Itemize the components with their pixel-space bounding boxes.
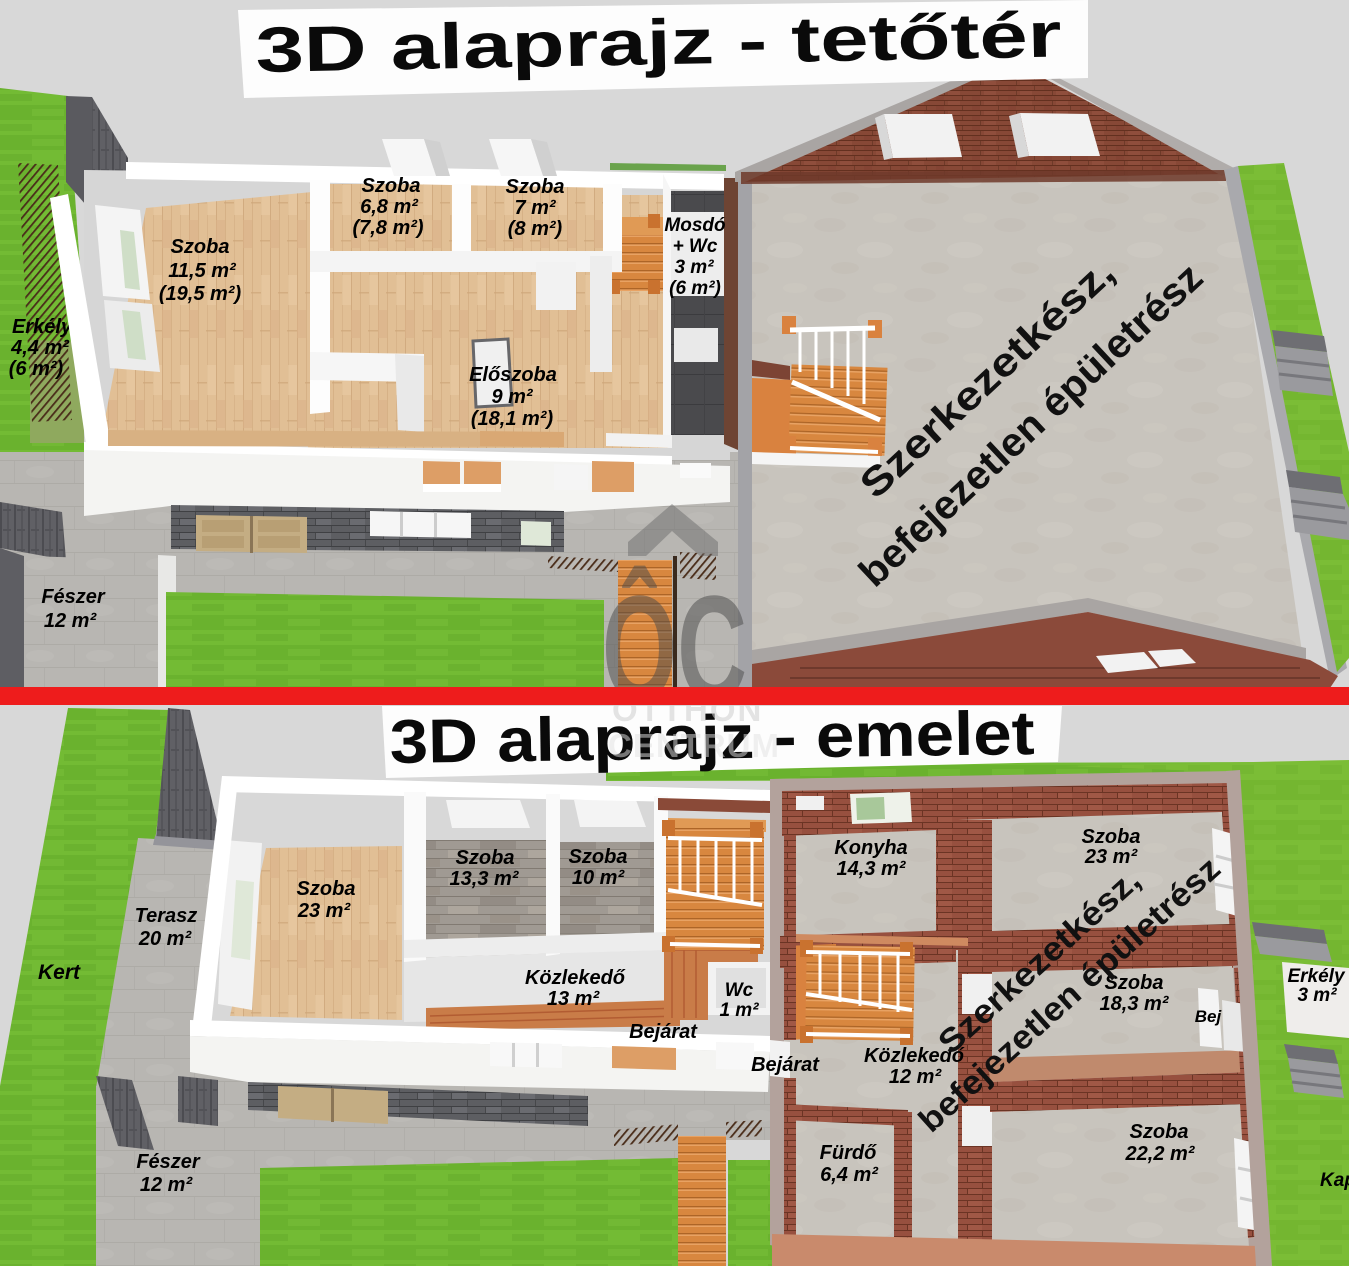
svg-text:6,4 m²: 6,4 m² xyxy=(820,1164,879,1186)
svg-text:Bej: Bej xyxy=(1195,1007,1223,1026)
svg-text:Fészer: Fészer xyxy=(136,1151,201,1173)
svg-text:23 m²: 23 m² xyxy=(297,900,352,922)
svg-text:Szoba: Szoba xyxy=(1130,1121,1189,1143)
svg-text:9 m²: 9 m² xyxy=(491,386,533,408)
svg-text:(6 m²): (6 m²) xyxy=(9,358,64,380)
svg-text:1 m²: 1 m² xyxy=(719,1000,759,1021)
svg-text:(19,5 m²): (19,5 m²) xyxy=(159,283,242,305)
svg-text:Fürdő: Fürdő xyxy=(820,1142,877,1164)
svg-text:11,5 m²: 11,5 m² xyxy=(168,260,237,282)
svg-text:Közlekedő: Közlekedő xyxy=(525,967,626,989)
svg-text:Szoba: Szoba xyxy=(171,236,230,258)
svg-text:Terasz: Terasz xyxy=(135,905,198,927)
svg-text:12 m²: 12 m² xyxy=(44,610,98,632)
svg-text:Konyha: Konyha xyxy=(834,837,907,859)
svg-text:Szoba: Szoba xyxy=(297,878,356,900)
svg-text:(8 m²): (8 m²) xyxy=(508,218,563,240)
svg-text:Kap: Kap xyxy=(1320,1170,1349,1191)
svg-text:Mosdó: Mosdó xyxy=(664,215,725,236)
svg-text:Erkély: Erkély xyxy=(1287,966,1345,987)
svg-text:23 m²: 23 m² xyxy=(1084,846,1139,868)
svg-text:22,2 m²: 22,2 m² xyxy=(1125,1143,1196,1165)
svg-text:(7,8 m²): (7,8 m²) xyxy=(352,217,423,239)
svg-text:13,3 m²: 13,3 m² xyxy=(450,868,520,890)
svg-text:12 m²: 12 m² xyxy=(889,1066,943,1088)
svg-text:+ Wc: + Wc xyxy=(673,236,718,257)
svg-text:3 m²: 3 m² xyxy=(674,257,714,278)
svg-text:Szoba: Szoba xyxy=(506,176,565,198)
svg-text:(18,1 m²): (18,1 m²) xyxy=(471,408,554,430)
svg-text:13 m²: 13 m² xyxy=(547,988,601,1010)
svg-text:Wc: Wc xyxy=(725,980,754,1001)
svg-text:Fészer: Fészer xyxy=(41,586,106,608)
svg-text:Erkély: Erkély xyxy=(12,316,73,338)
svg-text:Szoba: Szoba xyxy=(456,847,515,869)
svg-text:7 m²: 7 m² xyxy=(514,197,556,219)
svg-text:14,3 m²: 14,3 m² xyxy=(837,858,907,880)
svg-text:18,3 m²: 18,3 m² xyxy=(1100,993,1170,1015)
svg-text:10 m²: 10 m² xyxy=(572,867,626,889)
svg-text:Szoba: Szoba xyxy=(569,846,628,868)
svg-text:Bejárat: Bejárat xyxy=(751,1054,820,1076)
svg-text:12 m²: 12 m² xyxy=(140,1174,194,1196)
svg-text:6,8 m²: 6,8 m² xyxy=(360,196,419,218)
svg-text:CENTRUM: CENTRUM xyxy=(608,727,780,764)
svg-text:Előszoba: Előszoba xyxy=(469,364,557,386)
svg-text:Bejárat: Bejárat xyxy=(629,1021,698,1043)
svg-text:Szoba: Szoba xyxy=(1082,826,1141,848)
svg-text:Kert: Kert xyxy=(38,961,81,984)
svg-text:4,4 m²: 4,4 m² xyxy=(10,337,70,359)
svg-text:Szoba: Szoba xyxy=(362,175,421,197)
svg-text:(6 m²): (6 m²) xyxy=(669,278,721,299)
svg-text:3 m²: 3 m² xyxy=(1297,985,1337,1006)
svg-text:20 m²: 20 m² xyxy=(138,928,193,950)
